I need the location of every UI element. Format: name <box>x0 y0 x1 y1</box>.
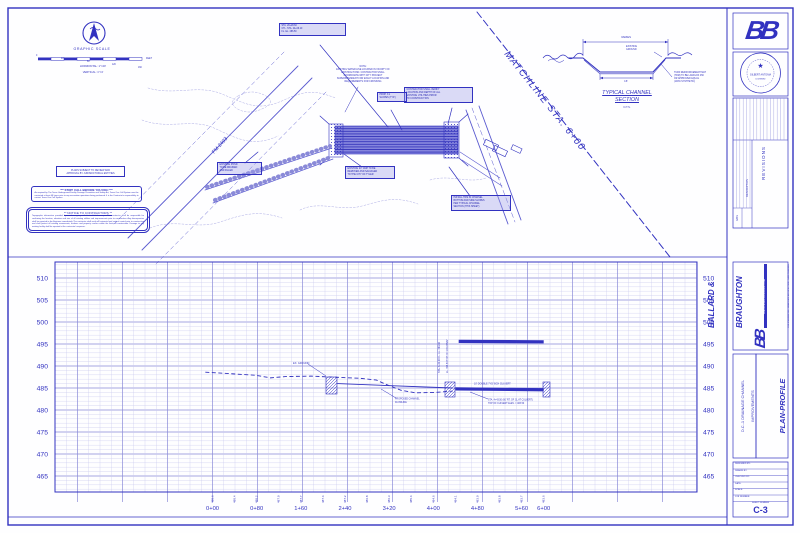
flowline-elev-annotation: 487.2 <box>343 495 347 503</box>
culvert-label: 10' DOUBLE 7'X5' BOX CULVERT <box>474 383 511 386</box>
project-name: D.C.-1 DRAINAGE CHANNEL IMPROVEMENTS <box>735 354 754 458</box>
callout-trm: INSTALL TRM IN CHANNEL BOTTOM AND SIDE S… <box>451 195 511 211</box>
company-tagline-1: CIVIL ENGINEERING - LANDSCAPE ARCHITECTU… <box>788 264 790 328</box>
info-row-4: SCALE: <box>735 489 743 492</box>
flowline-elev-annotation: 488.6 <box>211 495 215 503</box>
elevation-label: 495 <box>37 341 49 348</box>
flowline-elev-annotation: 487.4 <box>321 495 325 503</box>
station-label: 6+00 <box>537 506 550 512</box>
flowline-elev-annotation: 485.4 <box>409 495 413 503</box>
elevation-label: 465 <box>37 473 49 480</box>
revisions-title: REVISIONS <box>757 98 771 228</box>
profile-grid: 5105105055055005004954954904904854854804… <box>37 262 715 512</box>
profile-matchline-break <box>543 382 550 397</box>
flowline-elev-annotation: 487.7 <box>299 495 303 503</box>
sheet-title: PLAN-PROFILE STA. 0+00 TO STA. 6+00 <box>758 354 786 458</box>
flowline-elev-annotation: 486.3 <box>387 495 391 503</box>
elevation-label: 490 <box>37 363 49 370</box>
revisions-description-label: DESCRIPTION <box>743 150 752 226</box>
info-row-5: JOB NUMBER: <box>735 496 750 499</box>
company-bar: A REGISTERED ENGINEERING FIRM <box>764 264 768 328</box>
elevation-label: 510 <box>37 275 49 282</box>
channel-culvert-plan <box>320 114 468 166</box>
profile-frame <box>55 262 697 492</box>
callout-utilities: CONTRACTOR SHALL VERIFY LOCATION AND DEP… <box>404 87 473 103</box>
proposed-label-2: FLOWLINE <box>395 402 407 404</box>
section-title: TYPICAL CHANNEL SECTION <box>589 90 665 104</box>
elevation-label: 470 <box>703 451 715 458</box>
culvert-note-2: TOP OF CULVERT ELEV. = 483.50 <box>488 403 525 405</box>
callout-sta: STA. 20+28.60 CTL. STA. 24+06.10 FL. EL.… <box>279 23 346 36</box>
headwall-downstream <box>444 122 459 158</box>
company-logo: BB <box>751 330 770 349</box>
section-varies-label: VARIES <box>605 36 647 40</box>
vehicle <box>511 145 522 154</box>
section-nts: N.T.S. <box>589 106 665 109</box>
vehicle <box>492 145 507 156</box>
flowline-elev-annotation: 488.2 <box>255 495 259 503</box>
elevation-label: 470 <box>37 451 49 458</box>
flowline-elev-annotation: 484.1 <box>453 495 457 503</box>
flowline-elev-annotation: 483.8 <box>498 495 502 503</box>
flowline-elev-annotation: 484.6 <box>431 495 435 503</box>
contractors-notice-box: ** NOTICE TO CONTRACTORS ** Topographic … <box>28 209 148 231</box>
station-label: 0+80 <box>250 506 263 512</box>
ex-ground-label: EX. GROUND <box>293 361 310 365</box>
flowline-elev-annotation: 483.6 <box>542 495 546 503</box>
station-label: 1+60 <box>294 506 307 512</box>
waterline-note: NOTE: EXISTING WATER LINE LOCATED IN VIC… <box>318 66 408 84</box>
sheet-number: C-3 <box>733 505 788 517</box>
vehicle <box>483 139 498 150</box>
callout-pond: EXISTING POND TO BE DRAINED AND FILLED <box>217 162 262 175</box>
section-trm-note: TURF REINFORCEMENT MAT (TRM) TO BE LANDL… <box>674 72 730 84</box>
north-arrow-icon <box>83 22 105 44</box>
elevation-label: 495 <box>703 341 715 348</box>
seal-sub: LICENSED <box>755 79 766 81</box>
elevation-label: 480 <box>37 407 49 414</box>
elevation-label: 480 <box>703 407 715 414</box>
flowline-elev-annotation: 486.8 <box>365 495 369 503</box>
elevation-label: 485 <box>37 385 49 392</box>
flowline-elev-annotation: 483.9 <box>475 495 479 503</box>
elevation-label: 505 <box>37 297 49 304</box>
contour-lines <box>142 88 486 228</box>
revisions-date-label: DATE <box>734 208 742 228</box>
elevation-label: 500 <box>37 319 49 326</box>
station-label: 4+80 <box>471 506 484 512</box>
culvert-note-1: STA. 4+43.50 (60' RT. OF CL AT CULVERT) <box>488 399 533 402</box>
series-proposed-channel-flowline <box>337 384 452 388</box>
station-label: 5+60 <box>515 506 528 512</box>
station-label: 2+40 <box>338 506 351 512</box>
station-label: 0+00 <box>206 506 219 512</box>
graphic-scale-unit: FEET <box>146 57 152 60</box>
stop-dig-notice-box: *** STOP! CALL BEFORE YOU DIG! *** As re… <box>31 186 142 202</box>
info-row-3: DATE: <box>735 483 741 486</box>
flowline-elev-annotation: 487.9 <box>277 495 281 503</box>
callout-cmp: EXISTING 24" CMP TO BE REMOVED AND SALVA… <box>345 166 395 179</box>
company-name-1: BALLARD & <box>708 264 716 328</box>
station-label: 3+20 <box>383 506 396 512</box>
company-block: BB BALLARD & BRAUGHTON A REGISTERED ENGI… <box>733 262 788 350</box>
elevation-label: 475 <box>703 429 715 436</box>
elevation-label: 475 <box>37 429 49 436</box>
flowline-elev-annotation: 483.7 <box>520 495 524 503</box>
profile-annotations: EX. GROUND PROPOSED CHANNEL FLOWLINE 10'… <box>293 339 550 405</box>
station-label: 4+00 <box>427 506 440 512</box>
drawing-sheet: FM 2493 MATCHLINE STA. 6+00 510510505505… <box>0 0 800 533</box>
culvert-sta-label: STA. 4+32.00 FL. EL. 483.80 <box>438 341 441 373</box>
seal-name: GILBERT ANTONIA <box>750 74 772 77</box>
headwall-upstream <box>329 124 343 157</box>
review-notice-box: PLANS SUBJECT TO REVIEW AND APPROVAL BY … <box>56 166 125 177</box>
elevation-label: 465 <box>703 473 715 480</box>
scale-vertical: VERTICAL: 1"=4' <box>55 71 131 74</box>
info-row-1: DRAWN BY: <box>735 470 747 473</box>
section-existing-ground-label: EXISTING GROUND <box>626 45 656 51</box>
callout-slopes: PROP. 3:1 SLOPES (TYP.) <box>377 92 407 102</box>
typical-channel-section <box>543 39 692 80</box>
pe-seal: ★ GILBERT ANTONIA LICENSED <box>741 53 781 93</box>
info-row-0: DESIGNED BY: <box>735 463 750 466</box>
plan-view <box>114 12 670 264</box>
graphic-scale-title: GRAPHIC SCALE <box>58 47 126 52</box>
elevation-label: 485 <box>703 385 715 392</box>
roadway-el-label: EL. 495.50 TOP OF ROADWAY <box>446 339 449 373</box>
matchline-label: MATCHLINE STA. 6+00 <box>502 49 588 153</box>
scale-horizontal: HORIZONTAL: 1"=40' <box>55 65 131 68</box>
road-label: FM 2493 <box>211 136 229 155</box>
section-bottom-dim: 16' <box>612 80 640 84</box>
profile-headwall-1 <box>326 377 337 394</box>
flowline-elev-annotation: 488.4 <box>233 495 237 503</box>
company-name-2: BRAUGHTON <box>736 264 744 328</box>
elevation-label: 490 <box>703 363 715 370</box>
series-box-culvert <box>455 389 543 390</box>
sheet-border <box>8 8 793 525</box>
seal-star-icon: ★ <box>757 62 763 70</box>
info-row-2: CHECKED BY: <box>735 476 750 479</box>
bb-logo: BB <box>730 13 790 49</box>
profile-headwall-2 <box>445 382 455 397</box>
proposed-label-1: PROPOSED CHANNEL <box>395 398 420 401</box>
